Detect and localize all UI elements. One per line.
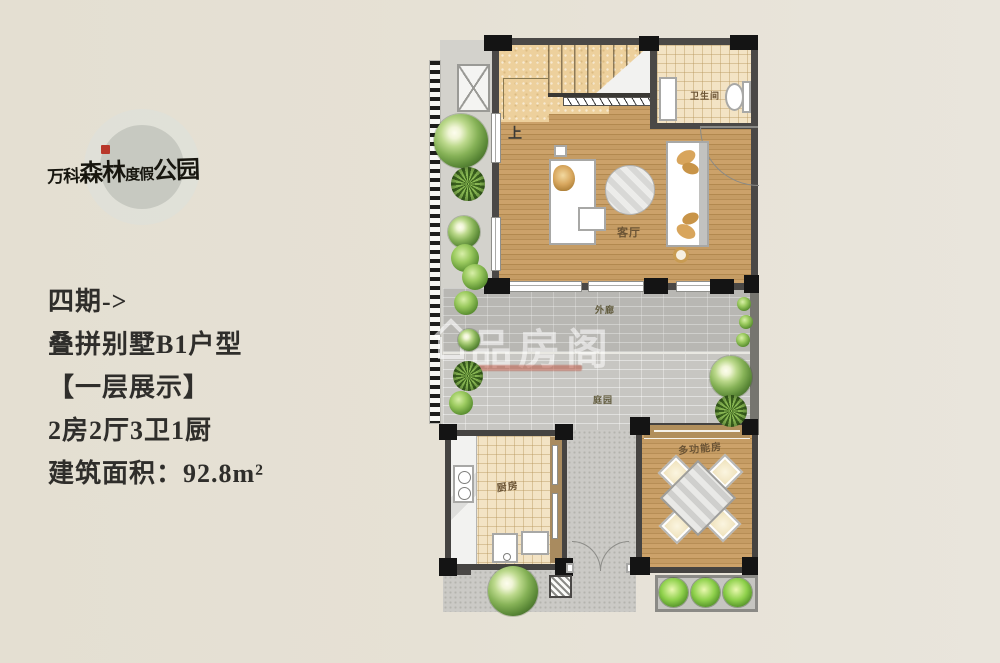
sofa-back <box>699 143 707 245</box>
palm-icon <box>453 361 483 391</box>
counter-block <box>521 531 549 555</box>
courtyard-label: 庭园 <box>573 393 633 406</box>
wall-box <box>554 145 567 157</box>
sofa <box>666 141 709 247</box>
info-room-count: 2房2厅3卫1厨 <box>48 409 398 452</box>
wall-block <box>630 417 650 435</box>
sofa-pillow <box>681 161 701 177</box>
stair-guide-line <box>503 78 549 119</box>
info-phase: 四期-> <box>48 280 398 323</box>
burner <box>458 471 471 484</box>
window <box>491 217 501 271</box>
logo-title-part: 万科 <box>47 167 80 187</box>
tree-icon <box>458 329 480 351</box>
window <box>588 281 644 292</box>
floorplan-poster: 万科森林度假公园 四期-> 叠拼别墅B1户型 【一层展示】 2房2厅3卫1厨 建… <box>0 0 1000 663</box>
bush-icon <box>462 264 488 290</box>
bush-icon <box>454 291 478 315</box>
wall-block <box>484 35 512 51</box>
wall-block <box>439 558 457 576</box>
wall-block <box>484 278 510 294</box>
wall-block <box>744 275 759 293</box>
logo-title-part: 森林 <box>79 160 126 188</box>
courtyard-right-wall <box>750 275 759 435</box>
corridor-label: 外廊 <box>575 303 635 316</box>
logo-title: 万科森林度假公园 <box>46 147 257 189</box>
stair-window-band <box>563 97 651 106</box>
info-block: 四期-> 叠拼别墅B1户型 【一层展示】 2房2厅3卫1厨 建筑面积：92.8m… <box>48 280 398 495</box>
bush-icon <box>736 333 750 347</box>
sink-drain <box>503 553 511 561</box>
project-logo: 万科森林度假公园 <box>60 95 220 245</box>
palm-icon <box>715 395 747 427</box>
window <box>491 113 501 163</box>
window <box>552 445 558 485</box>
wall-block <box>730 35 758 50</box>
entry-box <box>457 64 490 112</box>
floor-plan: 上 卫生间 客厅 <box>428 35 760 615</box>
palm-icon <box>451 167 485 201</box>
sink <box>492 533 518 563</box>
watermark-url-line <box>474 365 582 371</box>
wall-block <box>644 278 668 294</box>
sill-line <box>654 430 740 432</box>
wall-block <box>742 557 758 575</box>
entrance-path <box>567 430 636 612</box>
bush-icon <box>737 297 751 311</box>
bathroom-label: 卫生间 <box>675 89 735 102</box>
gate-post <box>566 563 574 573</box>
round-rug <box>605 165 655 215</box>
logo-title-part: 公园 <box>153 157 200 185</box>
door-leaf <box>700 126 758 128</box>
wall-block <box>710 279 734 294</box>
wall-block <box>555 424 573 440</box>
bush-icon <box>691 578 720 607</box>
window <box>552 493 558 539</box>
wall-block <box>439 424 457 440</box>
tree-icon <box>434 114 488 168</box>
bush-icon <box>723 578 752 607</box>
living-room-label: 客厅 <box>599 224 659 240</box>
stairs-up-label: 上 <box>508 123 522 143</box>
bush-icon <box>449 391 473 415</box>
bathroom-left-wall <box>650 45 657 129</box>
wall-block <box>630 557 650 575</box>
info-area: 建筑面积：92.8m² <box>48 452 398 495</box>
window <box>508 281 582 292</box>
bush-icon <box>659 578 688 607</box>
bush-icon <box>739 315 753 329</box>
stove-icon <box>453 465 474 503</box>
logo-title-part: 度假 <box>125 167 154 184</box>
info-unit-type: 叠拼别墅B1户型 <box>48 323 398 366</box>
scale-ruler <box>429 60 441 424</box>
info-floor-shown: 【一层展示】 <box>48 366 398 409</box>
wall-block <box>639 36 659 51</box>
wall-block <box>742 419 758 435</box>
side-table <box>673 247 689 263</box>
drain-tile <box>549 575 572 598</box>
tree-icon <box>710 356 752 398</box>
burner <box>458 487 471 500</box>
plant-decor <box>553 165 575 191</box>
tree-icon <box>488 566 538 616</box>
